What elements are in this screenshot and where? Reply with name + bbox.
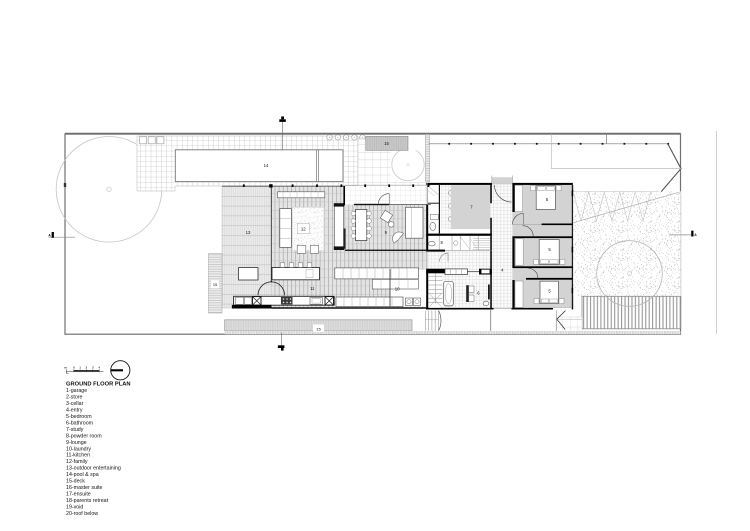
- svg-text:11: 11: [310, 286, 315, 291]
- svg-text:8-powder room: 8-powder room: [66, 433, 102, 439]
- svg-text:12-family: 12-family: [66, 459, 88, 465]
- svg-text:19-void: 19-void: [66, 504, 83, 510]
- svg-text:4-entry: 4-entry: [66, 408, 83, 414]
- svg-text:11-kitchen: 11-kitchen: [66, 453, 90, 459]
- svg-text:14: 14: [264, 163, 269, 168]
- svg-text:13-outdoor entertaining: 13-outdoor entertaining: [66, 466, 121, 472]
- svg-text:9-lounge: 9-lounge: [66, 440, 87, 446]
- svg-text:15: 15: [213, 282, 217, 287]
- svg-text:17-ensuite: 17-ensuite: [66, 491, 91, 497]
- svg-text:7-study: 7-study: [66, 427, 84, 433]
- svg-text:2-store: 2-store: [66, 395, 83, 401]
- svg-text:6-bathroom: 6-bathroom: [66, 420, 94, 426]
- svg-text:20-roof below: 20-roof below: [66, 511, 98, 517]
- svg-text:16-master suite: 16-master suite: [66, 485, 103, 491]
- svg-text:GROUND FLOOR PLAN: GROUND FLOOR PLAN: [66, 381, 131, 387]
- svg-text:15: 15: [316, 326, 321, 331]
- svg-text:15-deck: 15-deck: [66, 479, 85, 485]
- svg-text:14-pool & spa: 14-pool & spa: [66, 472, 99, 478]
- svg-text:18-parents retreat: 18-parents retreat: [66, 498, 109, 504]
- svg-text:3-cellar: 3-cellar: [66, 401, 84, 407]
- svg-text:5-bedroom: 5-bedroom: [66, 414, 92, 420]
- svg-text:13: 13: [246, 230, 251, 235]
- svg-text:12: 12: [301, 227, 306, 232]
- svg-text:15: 15: [384, 141, 389, 146]
- svg-text:1-garage: 1-garage: [66, 388, 87, 394]
- svg-text:10: 10: [395, 286, 400, 291]
- svg-text:10-laundry: 10-laundry: [66, 446, 91, 452]
